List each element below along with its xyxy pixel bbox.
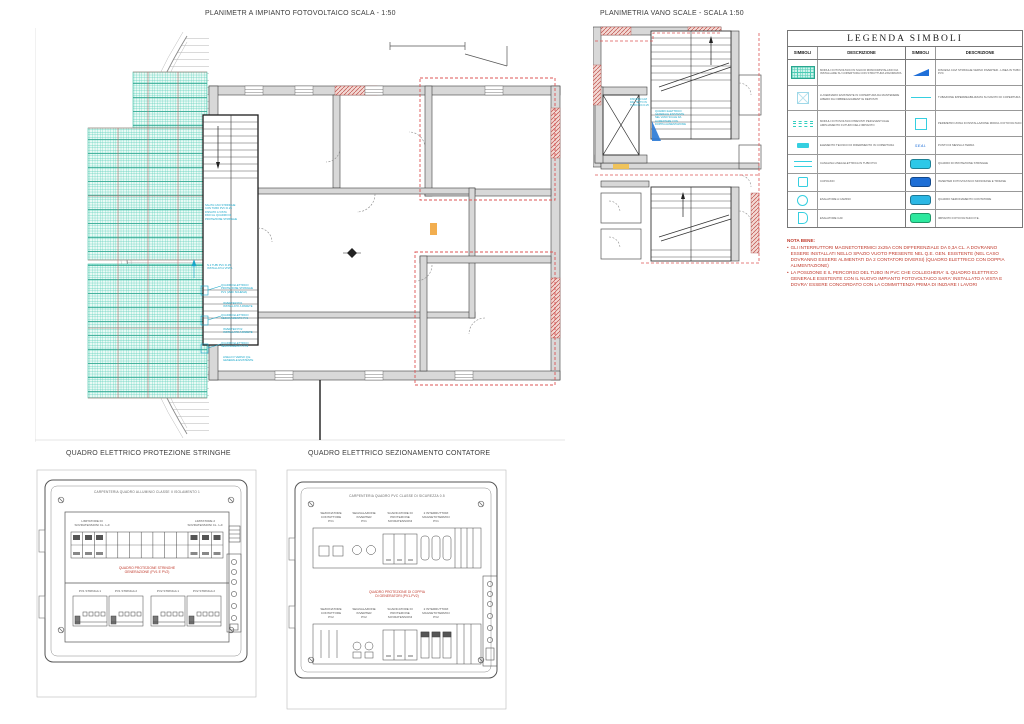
pv-annotation: LINEA FV VERSO Q.E. GENERALE ESISTENTE xyxy=(223,356,275,363)
panel-stringhe-title: QUADRO ELETTRICO PROTEZIONE STRINGHE xyxy=(66,450,231,457)
pv-array-blocks xyxy=(88,72,207,398)
panel1-group-label: PV1 STRINGA 2 xyxy=(109,590,143,594)
future-pv-symbol xyxy=(793,121,813,127)
stairs-plan-title: PLANIMETRIA VANO SCALE - SCALA 1:50 xyxy=(600,10,744,17)
inner-plate xyxy=(65,512,229,642)
note-bullet: GLI INTERRUTTORI MAGNETOTERMICI 2x25A CO… xyxy=(791,245,1013,269)
meter-panel-chip xyxy=(910,195,931,205)
door-swings xyxy=(258,132,485,334)
pv-module-symbol xyxy=(791,66,815,79)
pv-annotation: QUADRO ELETTRICO SEZIONAMENTO PV1 xyxy=(221,314,273,321)
legend-col-desc: DESCRIZIONE xyxy=(936,47,1024,58)
pv-plan: SALITA CAVI STRINGHE CON TUBO PVC D.25 F… xyxy=(35,28,565,442)
panel2-top-label: SEGNALAZIONE INVERTER PV1 xyxy=(346,512,382,523)
legend-desc: CANALINA LINEA ELETTRICA IN TUBO PVC xyxy=(818,155,906,172)
stair-shaft xyxy=(203,115,258,345)
double-line-symbol xyxy=(794,161,812,167)
note-heading: NOTA BENE: xyxy=(787,238,1013,244)
legend-desc: CUPOLINO xyxy=(818,174,906,191)
note-bullet: LA POSIZIONE E IL PERCORSO DEL TUBO IN P… xyxy=(791,270,1013,288)
panel2-top-label: SEZIONATORE CONTATTORE PV1 xyxy=(313,512,349,523)
note-block: NOTA BENE: GLI INTERRUTTORI MAGNETOTERMI… xyxy=(787,238,1013,290)
legend-desc: TUBAZIONE IMPERMEABILIZZATA SU MANTO DI … xyxy=(936,86,1024,111)
pv-annotation: INVERTER PV2 INSTALLATO A PARETE xyxy=(223,328,275,335)
panel-stringhe: CARPENTERIA QUADRO ALLUMINIO CLASSE II I… xyxy=(35,468,259,700)
dome-symbol xyxy=(798,177,808,187)
panel1-group-label: PV2 STRINGA 1 xyxy=(151,590,185,594)
stairs-annotation: DISCESA CAVI DAL TETTO IN TUBO PVC D.25 xyxy=(630,98,664,107)
panel2-bottom-label: SCARICATORE DI PROTEZIONE SOVRATENSIONI xyxy=(381,608,419,619)
panel2-red-text: QUADRO PROTEZIONE DI COPPIA DI GENERATOR… xyxy=(342,590,452,599)
pv-system-chip xyxy=(910,213,931,223)
legend-desc: MODULI FOTOVOLTAICI PREVISTI PER EVENTUA… xyxy=(818,111,906,136)
orange-highlight xyxy=(430,223,437,235)
inverter-chip xyxy=(910,177,931,187)
legend-col-symbol: SIMBOLI xyxy=(906,47,936,58)
panel-stringhe-drawing xyxy=(35,468,259,700)
legend-row: MODULI FOTOVOLTAICI IN SILICIO MONOCRIST… xyxy=(788,60,1022,86)
legend-desc: DISCESA CAVI STRINGHE VERSO INVERTER - L… xyxy=(936,60,1024,85)
stairs-plan-drawing xyxy=(593,25,763,265)
drawing-sheet: PLANIMETR A IMPIANTO FOTOVOLTAICO SCALA … xyxy=(0,0,1024,724)
perimeter-symbol xyxy=(915,118,927,130)
pv-annotation: QUADRO ELETTRICO PROTEZIONE STRINGHE PV1… xyxy=(221,284,273,294)
panel2-bottom-label: SEGNALAZIONE INVERTER PV2 xyxy=(346,608,382,619)
panel1-group-label: PV2 STRINGA 2 xyxy=(187,590,221,594)
panel2-bottom-label: SEZIONATORE CONTATTORE PV2 xyxy=(313,608,349,619)
stairs-annotation: QUADRO ELETTRICO GENERALE ESISTENTE NEL … xyxy=(655,110,699,126)
panel-contatore: CARPENTERIA QUADRO PVC CLASSE DI SICUREZ… xyxy=(285,468,509,712)
pipe-line-symbol xyxy=(911,97,931,98)
windows xyxy=(245,86,503,380)
vent2-symbol xyxy=(798,212,808,224)
panel1-label-right: LIMITATORE 2 SOVRATENSIONI CL. I+II xyxy=(182,520,228,528)
legend-desc: PERIMETRO ZONA DI INSTALLAZIONE MODULI F… xyxy=(936,111,1024,136)
legend-title: LEGENDA SIMBOLI xyxy=(788,31,1022,47)
panel1-group-label: PV1 STRINGA 1 xyxy=(73,590,107,594)
pv-plan-title: PLANIMETR A IMPIANTO FOTOVOLTAICO SCALA … xyxy=(205,10,396,17)
legend-desc: INVERTER FOTOVOLTAICO MONOFASE E TRIFASE xyxy=(936,174,1024,191)
stairs-plan: DISCESA CAVI DAL TETTO IN TUBO PVC D.25 … xyxy=(593,25,763,265)
building-walls xyxy=(209,86,560,380)
legend-row: ESALATORE A CAMINO QUADRO SEZIONAMENTO C… xyxy=(788,192,1022,210)
pv-annotation: N.2 TUBI PVC D.25 INSTALLATI A VISTA xyxy=(207,264,259,271)
legend-desc: MODULI FOTOVOLTAICI IN SILICIO MONOCRIST… xyxy=(818,60,906,85)
panel2-top-label: SCARICATORE DI PROTEZIONE SOVRATENSIONI xyxy=(381,512,419,523)
panel1-label-left: LIMITATORE DI SOVRATENSIONI CL. I+II xyxy=(69,520,115,528)
legend-desc: QUADRO DI PROTEZIONE STRINGHE xyxy=(936,155,1024,172)
legend-desc: ESALATORE A CAMINO xyxy=(818,192,906,209)
legend-row: MODULI FOTOVOLTAICI PREVISTI PER EVENTUA… xyxy=(788,111,1022,137)
legend-desc: ESALATORE CAF xyxy=(818,210,906,227)
legend-row: CANALINA LINEA ELETTRICA IN TUBO PVC QUA… xyxy=(788,155,1022,173)
legend-col-desc: DESCRIZIONE xyxy=(818,47,906,58)
lower-stair xyxy=(651,187,731,261)
legend-desc: IMPIANTO FOTOVOLTAICO P.E. xyxy=(936,210,1024,227)
legend-row: CUPOLINO INVERTER FOTOVOLTAICO MONOFASE … xyxy=(788,174,1022,192)
cable-descent-symbol xyxy=(913,69,929,76)
legend-desc: QUADRO SEZIONAMENTO CONTATORE xyxy=(936,192,1024,209)
string-panel-chip xyxy=(910,159,931,169)
canal-symbol xyxy=(797,143,809,148)
yellow-highlight xyxy=(613,164,629,169)
legend-col-symbol: SIMBOLI xyxy=(788,47,818,58)
seal-symbol: SEAL xyxy=(915,143,926,148)
brick-hatch-walls xyxy=(209,86,560,338)
pv-plan-drawing xyxy=(35,28,565,442)
panel-contatore-title: QUADRO ELETTRICO SEZIONAMENTO CONTATORE xyxy=(308,450,490,457)
panel1-header: CARPENTERIA QUADRO ALLUMINIO CLASSE II I… xyxy=(67,490,227,494)
legend-table: LEGENDA SIMBOLI SIMBOLI DESCRIZIONE SIMB… xyxy=(787,30,1023,228)
legend-desc: ELEMENTO TECNICO DI RIFERIMENTO IN COPER… xyxy=(818,137,906,154)
legend-row: LUCERNARIO ESISTENTE IN COPERTURA DA MAN… xyxy=(788,86,1022,112)
legend-header-row: SIMBOLI DESCRIZIONE SIMBOLI DESCRIZIONE xyxy=(788,47,1022,59)
legend-desc: LUCERNARIO ESISTENTE IN COPERTURA DA MAN… xyxy=(818,86,906,111)
panel1-red-text: QUADRO PROTEZIONE STRINGHE GENERAZIONE (… xyxy=(97,566,197,575)
legend-row: ELEMENTO TECNICO DI RIFERIMENTO IN COPER… xyxy=(788,137,1022,155)
vent-symbol xyxy=(797,195,808,206)
panel2-top-label: 2 INTERRUTTORI MAGNETOTERMICI PV1 xyxy=(417,512,455,523)
centre-marker xyxy=(343,248,361,258)
legend-row: ESALATORE CAF IMPIANTO FOTOVOLTAICO P.E. xyxy=(788,210,1022,227)
pv-annotation: INVERTER PV1 INSTALLATO A PARETE xyxy=(223,302,275,309)
legend-desc: PUNTO DI MESSA A TERRA xyxy=(936,137,1024,154)
pv-annotation: QUADRO ELETTRICO SEZIONAMENTO PV2 xyxy=(221,342,273,349)
panel2-header: CARPENTERIA QUADRO PVC CLASSE DI SICUREZ… xyxy=(317,494,477,498)
dimension-marks xyxy=(390,42,507,66)
skylight-symbol xyxy=(797,92,809,104)
panel2-bottom-label: 2 INTERRUTTORI MAGNETOTERMICI PV2 xyxy=(417,608,455,619)
pv-annotation: SALITA CAVI STRINGHE CON TUBO PVC D.25 F… xyxy=(205,204,261,221)
